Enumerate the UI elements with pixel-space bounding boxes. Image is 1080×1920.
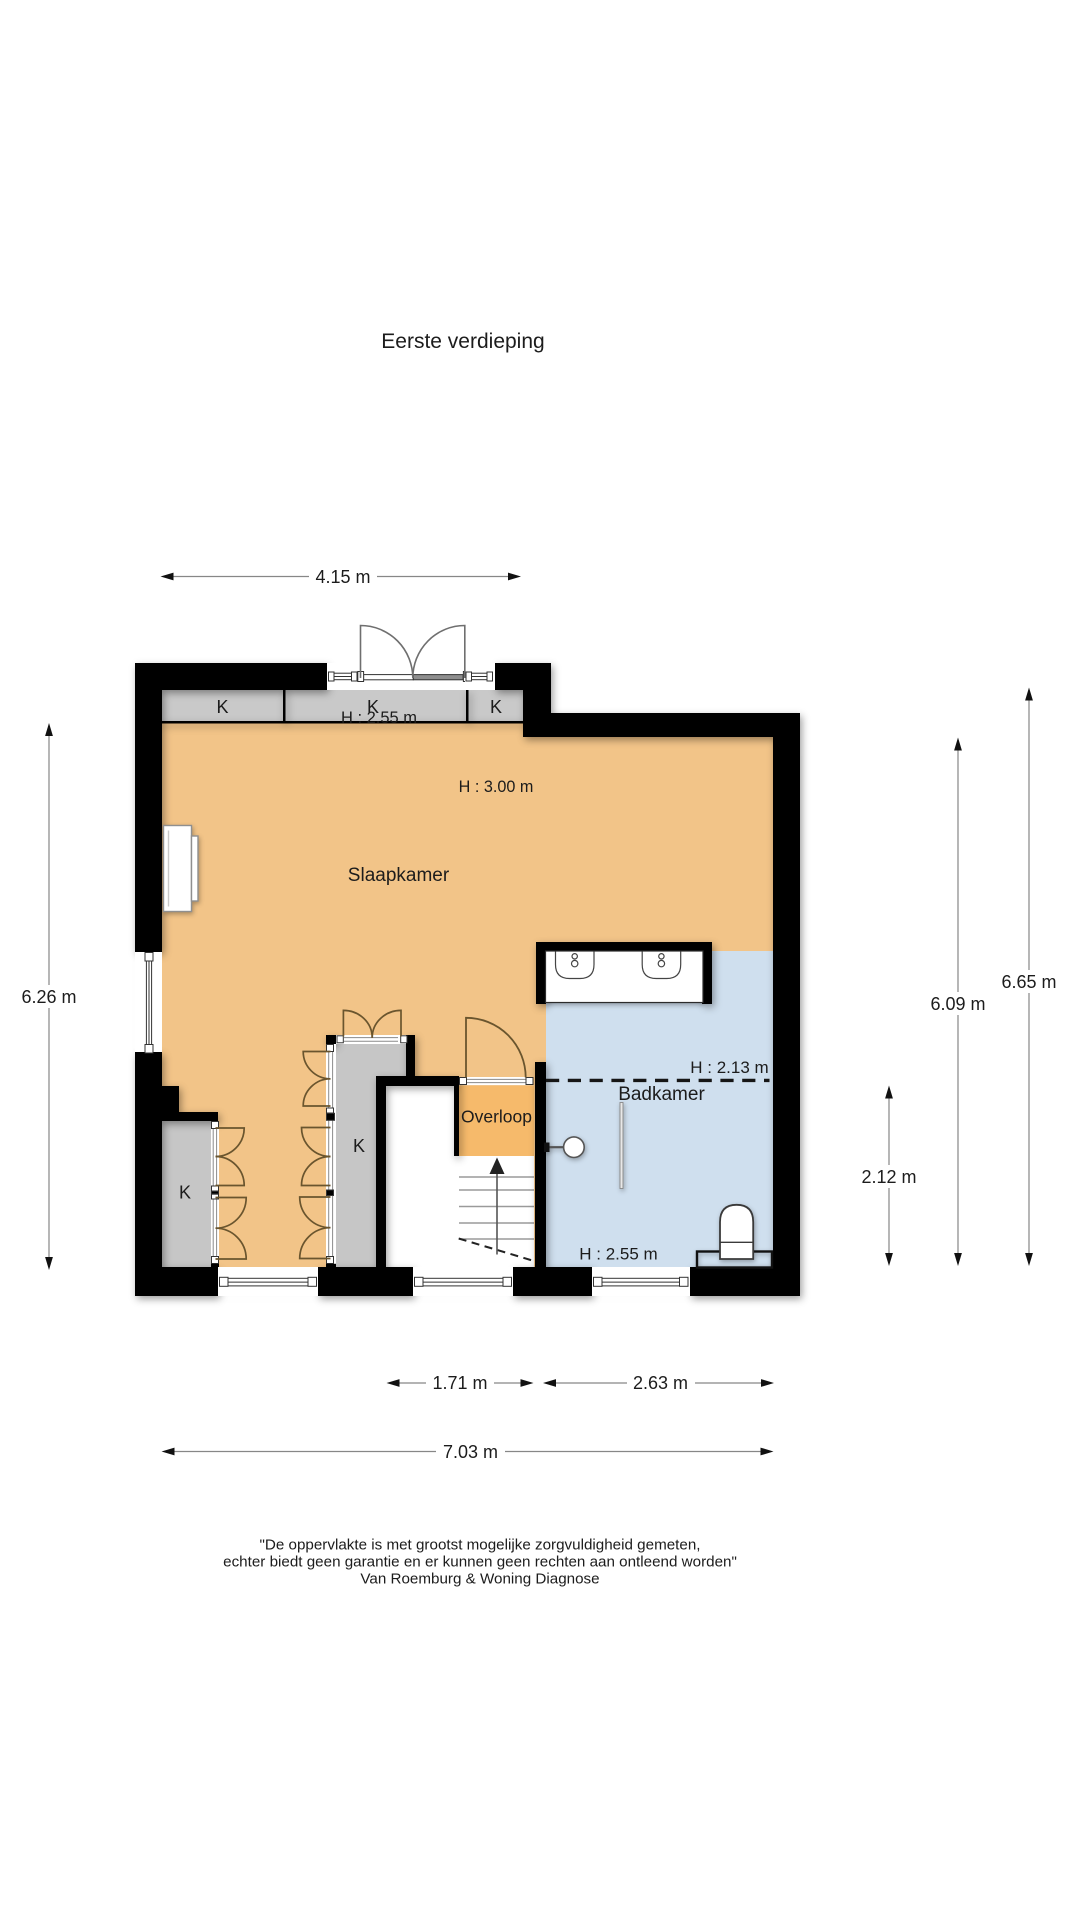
svg-text:echter biedt geen garantie en: echter biedt geen garantie en er kunnen … [223,1554,737,1571]
svg-text:6.26 m: 6.26 m [21,987,76,1007]
svg-text:K: K [490,697,502,717]
svg-text:Overloop: Overloop [461,1107,532,1127]
svg-text:6.09 m: 6.09 m [930,994,985,1014]
svg-text:Van Roemburg & Woning Diagnose: Van Roemburg & Woning Diagnose [360,1571,599,1588]
svg-text:Eerste verdieping: Eerste verdieping [381,330,544,353]
svg-text:7.03 m: 7.03 m [443,1442,498,1462]
svg-text:2.63 m: 2.63 m [633,1373,688,1393]
svg-text:K: K [179,1183,191,1203]
svg-text:2.12 m: 2.12 m [861,1167,916,1187]
svg-text:6.65 m: 6.65 m [1001,972,1056,992]
svg-text:Slaapkamer: Slaapkamer [348,865,450,886]
svg-text:K: K [216,697,228,717]
svg-text:Badkamer: Badkamer [618,1084,705,1105]
svg-text:"De oppervlakte is met grootst: "De oppervlakte is met grootst mogelijke… [260,1537,701,1554]
svg-text:H : 2.13 m: H : 2.13 m [690,1058,768,1077]
svg-text:4.15 m: 4.15 m [315,567,370,587]
svg-text:H : 2.55 m: H : 2.55 m [579,1245,657,1264]
svg-text:H : 2.55 m: H : 2.55 m [341,709,417,727]
svg-text:K: K [353,1136,365,1156]
svg-text:H : 3.00 m: H : 3.00 m [459,778,534,796]
svg-text:1.71 m: 1.71 m [432,1373,487,1393]
